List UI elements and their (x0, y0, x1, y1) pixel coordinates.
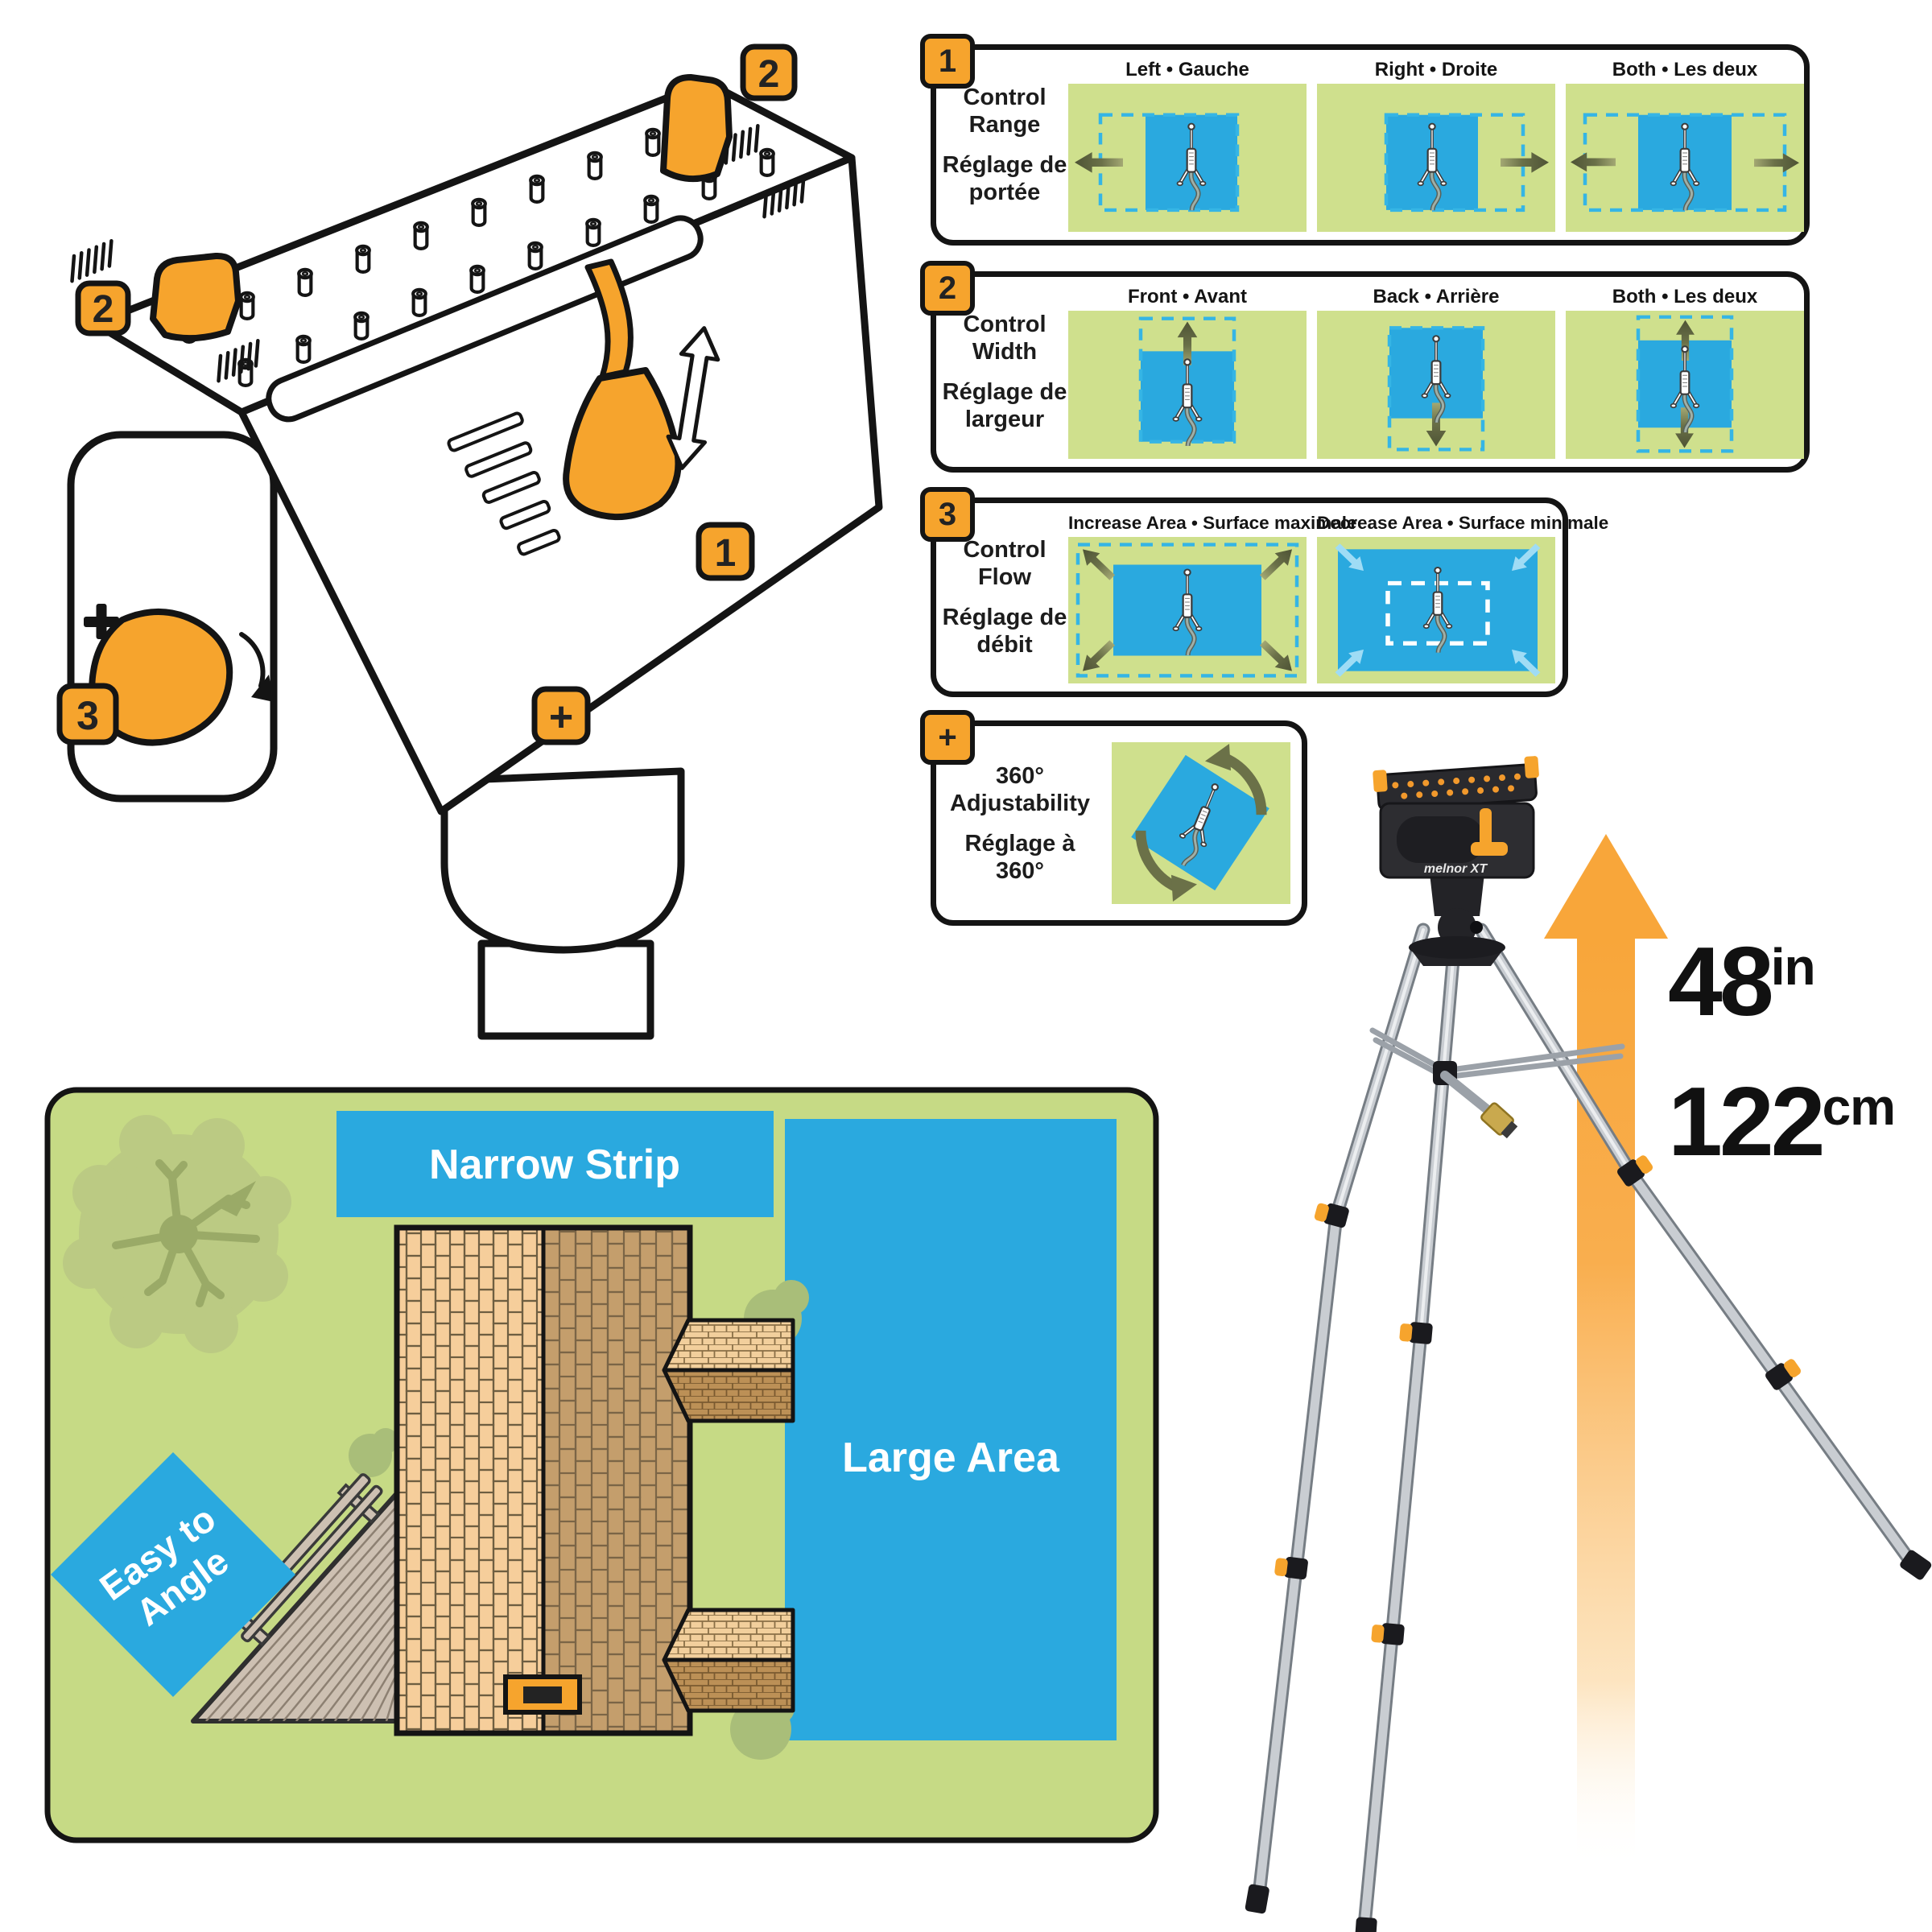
cell-header: Back • Arrière (1317, 283, 1555, 311)
height-in: 48in (1668, 919, 1895, 1059)
leg-clamps[interactable] (1274, 1152, 1803, 1645)
height-cm: 122cm (1668, 1059, 1895, 1199)
panel-badge-plus: + (920, 710, 975, 765)
panel-label-en: Control Width (941, 311, 1068, 365)
height-spec: 48in 122cm (1668, 919, 1895, 1199)
svg-text:2: 2 (758, 53, 780, 96)
cell-header: Left • Gauche (1068, 56, 1307, 84)
cell-header: Front • Avant (1068, 283, 1307, 311)
cell-flow-increase: Increase Area • Surface maximale (1068, 510, 1307, 683)
cell-header: Both • Les deux (1566, 283, 1804, 311)
scene-range-right (1317, 84, 1555, 232)
badge-width: 3 (60, 686, 116, 742)
badge-rotate: + (535, 689, 588, 742)
sprinkler-line-drawing: 2 2 1 3 + (0, 0, 918, 1046)
head-range-tab-right[interactable] (1524, 756, 1539, 778)
roof-left (397, 1228, 543, 1733)
scene-width-both (1566, 311, 1804, 459)
height-in-value: 48 (1668, 927, 1771, 1036)
range-tab-right[interactable] (663, 77, 729, 179)
cell-width-both: Both • Les deux (1566, 283, 1804, 459)
range-tab-left[interactable] (153, 256, 238, 338)
height-cm-unit: cm (1823, 1078, 1896, 1136)
cell-header: Decrease Area • Surface minimale (1317, 510, 1555, 537)
large-area-label: Large Area (842, 1435, 1060, 1481)
panel-label-fr: Réglage de largeur (941, 378, 1068, 433)
svg-text:+: + (549, 694, 573, 741)
panel-label-fr: Réglage de débit (941, 604, 1068, 658)
cell-header: Both • Les deux (1566, 56, 1804, 84)
narrow-strip-label: Narrow Strip (429, 1141, 680, 1188)
scene-flow-increase (1068, 537, 1307, 683)
svg-text:1: 1 (715, 532, 737, 575)
scene-width-front (1068, 311, 1307, 459)
cell-range-right: Right • Droite (1317, 56, 1555, 232)
cell-width-front: Front • Avant (1068, 283, 1307, 459)
yard-coverage-map: Narrow Strip Large Area (44, 1087, 1159, 1843)
tripod-product-photo: melnor XT (1167, 724, 1932, 1932)
panel-label-en: Control Range (941, 84, 1068, 138)
badge-range-right: 2 (743, 47, 795, 98)
svg-text:2: 2 (93, 288, 114, 331)
large-area-zone (785, 1119, 1117, 1740)
panel-control-range: 1 Control Range Réglage de portée Left •… (931, 44, 1810, 246)
badge-flow: 1 (699, 525, 752, 578)
height-arrow-icon (1544, 834, 1668, 1869)
panel-label-en: 360° Adjustability (941, 762, 1099, 817)
sprinkler-position-marker (506, 1677, 580, 1712)
head-range-tab-left[interactable] (1373, 770, 1388, 792)
panel-badge-1: 1 (920, 34, 975, 89)
panel-badge-2: 2 (920, 261, 975, 316)
panel-label-fr: Réglage à 360° (941, 830, 1099, 885)
panel-label-fr: Réglage de portée (941, 151, 1068, 206)
sprinkler-head: melnor XT (1373, 756, 1541, 966)
panel-badge-3: 3 (920, 487, 975, 542)
infographic-page: 2 2 1 3 + (0, 0, 1932, 1932)
svg-text:3: 3 (76, 693, 99, 738)
scene-width-back (1317, 311, 1555, 459)
cell-header: Right • Droite (1317, 56, 1555, 84)
panel-control-flow: 3 Control Flow Réglage de débit Increase… (931, 497, 1568, 697)
height-in-unit: in (1771, 938, 1815, 996)
cell-range-both: Both • Les deux (1566, 56, 1804, 232)
panel-control-width: 2 Control Width Réglage de largeur Front… (931, 271, 1810, 473)
scene-range-left (1068, 84, 1307, 232)
hose-connector (481, 943, 650, 1036)
scene-range-both (1566, 84, 1804, 232)
scene-flow-decrease (1317, 537, 1555, 683)
dormer-bottom (664, 1610, 793, 1711)
cell-width-back: Back • Arrière (1317, 283, 1555, 459)
cell-range-left: Left • Gauche (1068, 56, 1307, 232)
head-flow-lever[interactable] (1480, 808, 1492, 847)
badge-range-left: 2 (78, 283, 128, 333)
hose-fitting[interactable] (1445, 1075, 1519, 1140)
cell-flow-decrease: Decrease Area • Surface minimale (1317, 510, 1555, 683)
brand-label: melnor XT (1424, 862, 1488, 876)
swivel-base (444, 771, 681, 950)
panel-label-en: Control Flow (941, 536, 1068, 591)
cell-header: Increase Area • Surface maximale (1068, 510, 1307, 537)
height-cm-value: 122 (1668, 1067, 1823, 1176)
dormer-top (664, 1320, 793, 1421)
